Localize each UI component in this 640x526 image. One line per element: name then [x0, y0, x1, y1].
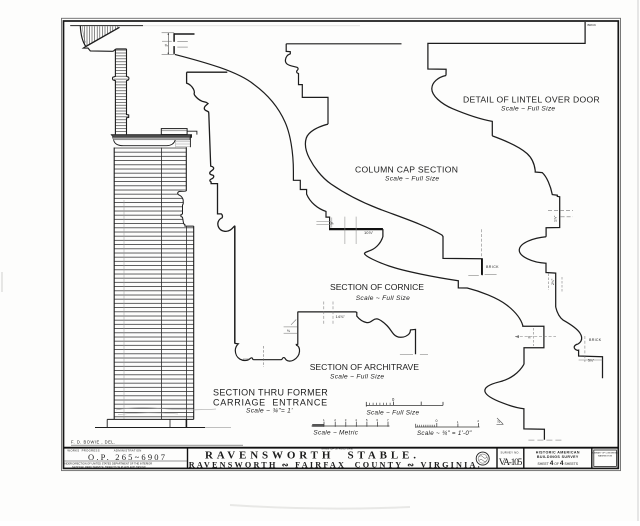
svg-text:2: 2	[334, 418, 336, 422]
svg-text:LIBRARY OF CONGRESS: LIBRARY OF CONGRESS	[593, 452, 618, 455]
svg-text:1: 1	[323, 418, 325, 422]
svg-text:NATIONAL PARK SERVICE, BRANCH: NATIONAL PARK SERVICE, BRANCH OF PLANS A…	[72, 465, 146, 469]
svg-text:UNDER DIRECTION OF UNITED STAT: UNDER DIRECTION OF UNITED STATES DEPARTM…	[63, 462, 152, 466]
svg-text:5: 5	[366, 418, 368, 422]
svg-text:Scale ~ ¾" = 1'-0": Scale ~ ¾" = 1'-0"	[417, 430, 472, 437]
svg-text:CARRIAGE ENTRANCE: CARRIAGE ENTRANCE	[213, 398, 329, 408]
svg-text:WASHINGTON: WASHINGTON	[598, 454, 613, 457]
svg-text:SECTION OF ARCHITRAVE: SECTION OF ARCHITRAVE	[310, 362, 420, 372]
svg-text:2: 2	[477, 419, 479, 423]
svg-text:5¼": 5¼"	[588, 359, 595, 363]
svg-text:2¾": 2¾"	[551, 278, 555, 285]
svg-text:O.P. 265~6907: O.P. 265~6907	[88, 452, 165, 462]
svg-text:7: 7	[387, 418, 389, 422]
svg-text:Scale ~ Full Size: Scale ~ Full Size	[330, 374, 384, 381]
svg-text:⅜: ⅜	[331, 222, 334, 226]
svg-text:Scale ~ Full Size: Scale ~ Full Size	[501, 106, 555, 113]
svg-text:⅜: ⅜	[165, 44, 168, 48]
svg-text:F. D. BOWIE , DEL.: F. D. BOWIE , DEL.	[71, 440, 116, 445]
svg-text:Scale ~ Full Size: Scale ~ Full Size	[385, 175, 439, 182]
svg-text:1⅞": 1⅞"	[554, 215, 558, 222]
svg-text:COLUMN CAP SECTION: COLUMN CAP SECTION	[355, 165, 459, 175]
svg-text:1: 1	[457, 420, 459, 424]
svg-text:VA-105: VA-105	[499, 458, 523, 468]
svg-text:⅜: ⅜	[287, 329, 290, 333]
svg-text:Scale ~ ¾"= 1': Scale ~ ¾"= 1'	[246, 408, 293, 415]
svg-text:SHEET 4 OF 4 SHEETS: SHEET 4 OF 4 SHEETS	[538, 460, 579, 467]
svg-text:SURVEY NO.: SURVEY NO.	[501, 450, 520, 454]
svg-text:3: 3	[345, 418, 347, 422]
svg-text:6: 6	[376, 418, 378, 422]
svg-text:BRICK: BRICK	[486, 265, 499, 269]
svg-text:14⅞": 14⅞"	[336, 314, 346, 319]
svg-text:4: 4	[355, 418, 357, 422]
svg-text:0: 0	[392, 397, 395, 402]
svg-text:BUILDINGS SURVEY: BUILDINGS SURVEY	[537, 455, 579, 459]
svg-text:0: 0	[436, 419, 438, 423]
svg-text:Scale ~ Full Size: Scale ~ Full Size	[367, 410, 420, 417]
svg-text:SECTION OF CORNICE: SECTION OF CORNICE	[330, 282, 425, 292]
svg-text:Scale ~ Full Size: Scale ~ Full Size	[356, 295, 410, 302]
svg-text:Scale ~ Metric: Scale ~ Metric	[313, 430, 358, 437]
svg-text:⅞: ⅞	[497, 420, 500, 424]
svg-text:⅞: ⅞	[528, 335, 531, 339]
svg-text:10⅞": 10⅞"	[364, 230, 374, 235]
svg-text:HISTORIC AMERICAN: HISTORIC AMERICAN	[536, 450, 580, 454]
svg-text:SECTION THRU FORMER: SECTION THRU FORMER	[213, 388, 329, 398]
svg-text:BRICK: BRICK	[588, 23, 597, 27]
svg-text:DETAIL OF LINTEL OVER DOOR: DETAIL OF LINTEL OVER DOOR	[463, 95, 601, 105]
svg-text:BRICK: BRICK	[589, 338, 602, 342]
